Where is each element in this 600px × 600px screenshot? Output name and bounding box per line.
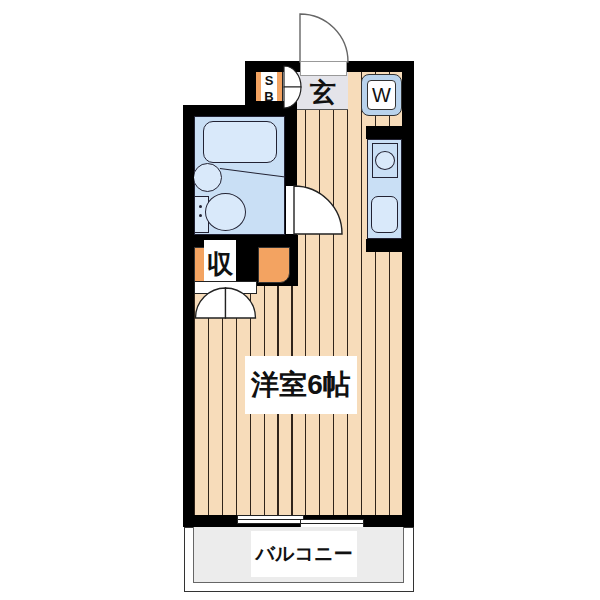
wall-right [402,61,414,527]
closet-door-track [194,281,257,294]
balcony-window-pane [237,515,304,524]
entrance-label: 玄 [310,75,336,110]
wall-sb-bottom [245,101,297,111]
balcony-label-box: バルコニー [251,531,357,577]
kitchen-stove-space [371,196,398,233]
bathroom-sink [193,163,222,192]
toilet-button [199,205,202,208]
entrance-door-icon [300,14,348,62]
main-room-label: 洋室6帖 [251,366,351,404]
kitchen-sink [375,151,395,170]
floor-plan: 収 W SB 玄 [0,0,600,600]
washer-inner-box: W [367,80,396,110]
washer-label: W [372,84,391,107]
balcony-label: バルコニー [256,541,353,567]
main-room-label-box: 洋室6帖 [245,356,357,414]
kitchen-wall-bottom [366,239,402,252]
bathroom-door-opening [286,186,297,234]
kitchen-wall-top [366,126,402,139]
toilet-button [199,214,202,217]
closet-label: 収 [207,247,233,282]
bathtub [203,121,277,163]
toilet-bowl [205,193,246,231]
wall-left [183,105,194,527]
counter-shelf [258,247,290,283]
entrance-label-box: 玄 [300,76,346,108]
